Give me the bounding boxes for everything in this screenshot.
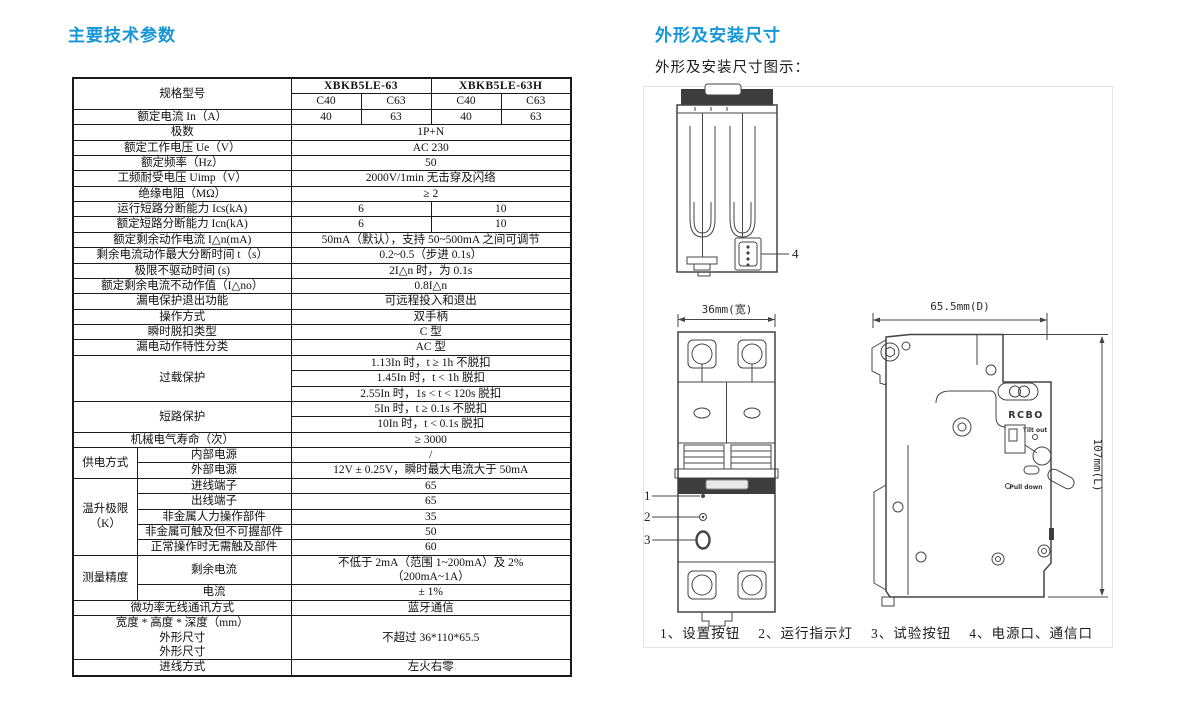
table-cell: 双手柄	[291, 309, 571, 324]
table-cell: XBKB5LE-63H	[431, 78, 571, 94]
table-cell: 极限不驱动时间 (s)	[73, 263, 291, 278]
table-cell: 规格型号	[73, 78, 291, 109]
table-cell: 绝缘电阻（MΩ）	[73, 186, 291, 201]
table-cell: 63	[501, 109, 571, 124]
table-row: 过载保护1.13In 时，t ≥ 1h 不脱扣	[73, 355, 571, 370]
table-row: 额定短路分断能力 Icn(kA)610	[73, 217, 571, 232]
table-cell: 额定短路分断能力 Icn(kA)	[73, 217, 291, 232]
side-view-drawing: 65.5mm(D) RCBO Tilt out Pull down 107mm(…	[858, 295, 1113, 625]
table-row: 宽度 * 高度 * 深度（mm） 外形尺寸 外形尺寸不超过 36*110*65.…	[73, 616, 571, 660]
table-cell: XBKB5LE-63	[291, 78, 431, 94]
table-cell: 不超过 36*110*65.5	[291, 616, 571, 660]
table-row: 极数1P+N	[73, 125, 571, 140]
right-section-title: 外形及安装尺寸	[655, 21, 781, 46]
table-row: 额定剩余电流不动作值（I△no）0.8I△n	[73, 278, 571, 293]
table-row: 漏电保护退出功能可远程投入和退出	[73, 294, 571, 309]
table-cell: 2000V/1min 无击穿及闪络	[291, 171, 571, 186]
table-cell: 剩余电流	[137, 555, 291, 585]
table-row: 绝缘电阻（MΩ）≥ 2	[73, 186, 571, 201]
table-cell: 10	[431, 202, 571, 217]
table-cell: 内部电源	[137, 448, 291, 463]
table-row: 短路保护5In 时，t ≥ 0.1s 不脱扣	[73, 401, 571, 416]
table-row: 工频耐受电压 Uimp（V）2000V/1min 无击穿及闪络	[73, 171, 571, 186]
table-cell: 操作方式	[73, 309, 291, 324]
body-outline	[678, 332, 775, 612]
table-cell: 12V ± 0.25V，瞬时最大电流大于 50mA	[291, 463, 571, 478]
table-cell: C40	[291, 94, 361, 109]
diagram-subtitle: 外形及安装尺寸图示：	[655, 56, 810, 77]
table-cell: 测量精度	[73, 555, 137, 600]
table-cell: 可远程投入和退出	[291, 294, 571, 309]
tilt-out-label: Tilt out	[1023, 427, 1048, 434]
table-cell: 50	[291, 155, 571, 170]
table-cell: 出线端子	[137, 494, 291, 509]
table-cell: C63	[361, 94, 431, 109]
table-cell: 6	[291, 202, 431, 217]
table-cell: 机械电气寿命（次）	[73, 432, 291, 447]
table-cell: 电流	[137, 585, 291, 600]
table-cell: 蓝牙通信	[291, 600, 571, 615]
table-row: 温升极限 （K）进线端子65	[73, 478, 571, 493]
table-cell: 2I△n 时，为 0.1s	[291, 263, 571, 278]
table-cell: ± 1%	[291, 585, 571, 600]
table-cell: 1.13In 时，t ≥ 1h 不脱扣	[291, 355, 571, 370]
caption-item: 2、运行指示灯	[758, 622, 853, 642]
table-cell: C 型	[291, 325, 571, 340]
table-row: 运行短路分断能力 Ics(kA)610	[73, 202, 571, 217]
table-cell: 额定工作电压 Ue（V）	[73, 140, 291, 155]
table-row: 测量精度剩余电流不低于 2mA（范围 1~200mA）及 2% （200mA~1…	[73, 555, 571, 585]
spec-table: 规格型号XBKB5LE-63XBKB5LE-63HC40C63C40C63额定电…	[72, 77, 572, 677]
table-cell: 瞬时脱扣类型	[73, 325, 291, 340]
table-row: 机械电气寿命（次）≥ 3000	[73, 432, 571, 447]
table-cell: 额定剩余动作电流 I△n(mA)	[73, 232, 291, 247]
table-row: 进线方式左火右零	[73, 660, 571, 676]
table-row: 正常操作时无需触及部件60	[73, 540, 571, 555]
caption-item: 4、电源口、通信口	[969, 622, 1093, 642]
table-row: 额定剩余动作电流 I△n(mA)50mA（默认），支持 50~500mA 之间可…	[73, 232, 571, 247]
table-cell: 宽度 * 高度 * 深度（mm） 外形尺寸 外形尺寸	[73, 616, 291, 660]
left-section-title: 主要技术参数	[68, 21, 176, 46]
table-row: 非金属人力操作部件35	[73, 509, 571, 524]
din-rail-clip-shape	[874, 485, 886, 590]
terminal-screw-bottom-left	[692, 575, 712, 595]
table-cell: 63	[361, 109, 431, 124]
callout-3-label: 3	[644, 532, 651, 547]
terminal-screw-top-right	[742, 344, 762, 364]
table-cell: 2.55In 时，1s < t < 120s 脱扣	[291, 386, 571, 401]
table-row: 剩余电流动作最大分断时间 t（s）0.2~0.5（步进 0.1s）	[73, 248, 571, 263]
rcbo-label: RCBO	[1008, 410, 1044, 421]
terminal-screw-bottom-right	[742, 575, 762, 595]
table-cell: 额定剩余电流不动作值（I△no）	[73, 278, 291, 293]
table-cell: AC 型	[291, 340, 571, 355]
table-cell: 40	[431, 109, 501, 124]
spec-table-body: 规格型号XBKB5LE-63XBKB5LE-63HC40C63C40C63额定电…	[73, 78, 571, 676]
table-cell: 漏电动作特性分类	[73, 340, 291, 355]
table-cell: AC 230	[291, 140, 571, 155]
table-cell: 1P+N	[291, 125, 571, 140]
table-cell: 进线方式	[73, 660, 291, 676]
table-cell: 6	[291, 217, 431, 232]
table-cell: 漏电保护退出功能	[73, 294, 291, 309]
table-cell: ≥ 3000	[291, 432, 571, 447]
diagram-caption: 1、设置按钮 2、运行指示灯 3、试验按钮 4、电源口、通信口	[660, 622, 1093, 642]
table-cell: 正常操作时无需触及部件	[137, 540, 291, 555]
table-cell: 非金属人力操作部件	[137, 509, 291, 524]
table-row: 额定电流 In（A）40634063	[73, 109, 571, 124]
caption-item: 3、试验按钮	[871, 622, 951, 642]
table-row: 瞬时脱扣类型C 型	[73, 325, 571, 340]
table-cell: C40	[431, 94, 501, 109]
callout-2-label: 2	[644, 509, 651, 524]
table-row: 额定工作电压 Ue（V）AC 230	[73, 140, 571, 155]
page: { "page": { "left_title": "主要技术参数", "rig…	[0, 0, 1200, 703]
table-cell: 0.8I△n	[291, 278, 571, 293]
bottom-view-drawing: 4	[665, 84, 805, 284]
table-row: 出线端子65	[73, 494, 571, 509]
table-row: 电流± 1%	[73, 585, 571, 600]
table-cell: 工频耐受电压 Uimp（V）	[73, 171, 291, 186]
height-dimension-label: 107mm(L)	[1091, 439, 1104, 492]
table-row: 极限不驱动时间 (s)2I△n 时，为 0.1s	[73, 263, 571, 278]
width-dimension-label: 36mm(宽)	[702, 302, 753, 316]
table-cell: 极数	[73, 125, 291, 140]
body-outline	[886, 335, 1051, 598]
table-cell: /	[291, 448, 571, 463]
table-cell: 进线端子	[137, 478, 291, 493]
table-cell: 40	[291, 109, 361, 124]
table-row: 非金属可触及但不可握部件50	[73, 524, 571, 539]
indicator-window-right	[744, 408, 760, 418]
table-cell: 外部电源	[137, 463, 291, 478]
body-outline	[677, 105, 777, 272]
table-cell: 65	[291, 494, 571, 509]
table-cell: ≥ 2	[291, 186, 571, 201]
test-button-shape	[697, 532, 710, 549]
depth-dimension-label: 65.5mm(D)	[930, 300, 990, 313]
table-cell: 非金属可触及但不可握部件	[137, 524, 291, 539]
pull-down-label: Pull down	[1009, 484, 1042, 491]
table-row: 供电方式内部电源/	[73, 448, 571, 463]
table-cell: C63	[501, 94, 571, 109]
table-cell: 1.45In 时，t < 1h 脱扣	[291, 371, 571, 386]
table-row: 操作方式双手柄	[73, 309, 571, 324]
table-row: 外部电源12V ± 0.25V，瞬时最大电流大于 50mA	[73, 463, 571, 478]
setting-button-shape	[701, 494, 705, 498]
table-cell: 微功率无线通讯方式	[73, 600, 291, 615]
table-row: 漏电动作特性分类AC 型	[73, 340, 571, 355]
indicator-window-left	[694, 408, 710, 418]
din-clip-shape	[687, 257, 717, 264]
table-row: 微功率无线通讯方式蓝牙通信	[73, 600, 571, 615]
table-row: 规格型号XBKB5LE-63XBKB5LE-63H	[73, 78, 571, 94]
table-cell: 10In 时，t < 0.1s 脱扣	[291, 417, 571, 432]
table-cell: 60	[291, 540, 571, 555]
handle-tab-shape	[705, 84, 741, 95]
front-view-drawing: 36mm(宽) 1 2 3	[640, 300, 820, 630]
terminal-screw-top-left	[692, 344, 712, 364]
table-cell: 供电方式	[73, 448, 137, 479]
caption-item: 1、设置按钮	[660, 622, 740, 642]
table-cell: 运行短路分断能力 Ics(kA)	[73, 202, 291, 217]
callout-1-label: 1	[644, 488, 651, 503]
table-cell: 左火右零	[291, 660, 571, 676]
table-cell: 额定频率（Hz）	[73, 155, 291, 170]
table-cell: 10	[431, 217, 571, 232]
table-row: 额定频率（Hz）50	[73, 155, 571, 170]
table-cell: 不低于 2mA（范围 1~200mA）及 2% （200mA~1A）	[291, 555, 571, 585]
table-cell: 剩余电流动作最大分断时间 t（s）	[73, 248, 291, 263]
table-cell: 65	[291, 478, 571, 493]
table-cell: 额定电流 In（A）	[73, 109, 291, 124]
table-cell: 50	[291, 524, 571, 539]
table-cell: 过载保护	[73, 355, 291, 401]
callout-4-label: 4	[792, 246, 799, 261]
table-cell: 5In 时，t ≥ 0.1s 不脱扣	[291, 401, 571, 416]
toggle-mechanism-shape	[1033, 447, 1051, 465]
table-cell: 35	[291, 509, 571, 524]
table-cell: 短路保护	[73, 401, 291, 432]
table-cell: 0.2~0.5（步进 0.1s）	[291, 248, 571, 263]
table-cell: 50mA（默认），支持 50~500mA 之间可调节	[291, 232, 571, 247]
table-cell: 温升极限 （K）	[73, 478, 137, 555]
